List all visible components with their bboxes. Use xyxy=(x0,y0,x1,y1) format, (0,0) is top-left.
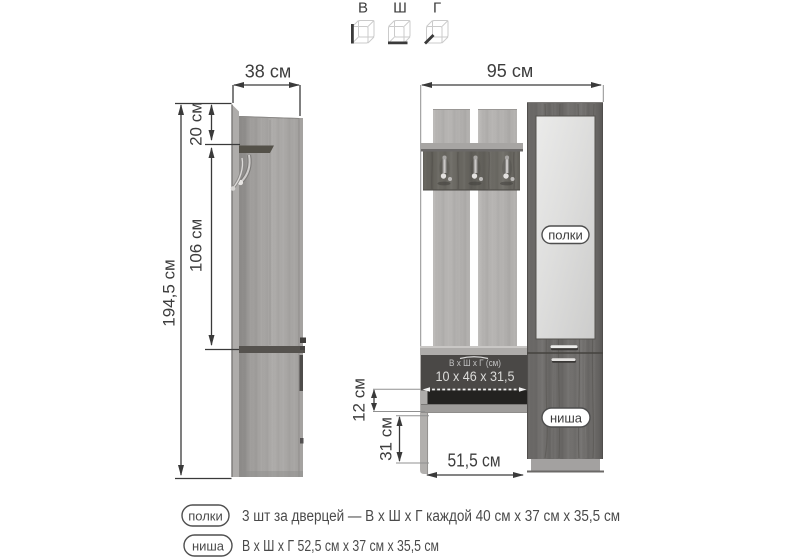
svg-text:полки: полки xyxy=(188,509,223,524)
svg-text:31 см: 31 см xyxy=(377,417,396,461)
svg-text:38 см: 38 см xyxy=(245,62,291,82)
svg-text:3 шт за дверцей — В х Ш х Г ка: 3 шт за дверцей — В х Ш х Г каждой 40 см… xyxy=(242,508,620,525)
svg-text:10 х 46 х 31,5: 10 х 46 х 31,5 xyxy=(436,369,515,384)
svg-text:51,5 см: 51,5 см xyxy=(448,450,501,471)
svg-text:20 см: 20 см xyxy=(187,102,206,146)
svg-text:ниша: ниша xyxy=(550,411,583,426)
svg-text:ниша: ниша xyxy=(192,539,225,554)
svg-text:12 см: 12 см xyxy=(350,378,369,422)
svg-text:106 см: 106 см xyxy=(187,219,206,272)
svg-text:Г: Г xyxy=(433,0,441,17)
svg-text:полки: полки xyxy=(548,228,583,243)
svg-text:В х Ш х Г (см): В х Ш х Г (см) xyxy=(449,358,501,369)
svg-text:В х Ш х Г 52,5 см х 37 см х 35: В х Ш х Г 52,5 см х 37 см х 35,5 см xyxy=(242,538,439,555)
svg-text:Ш: Ш xyxy=(393,0,407,17)
svg-text:194,5 см: 194,5 см xyxy=(160,259,179,326)
svg-text:95 см: 95 см xyxy=(487,61,533,81)
svg-text:В: В xyxy=(358,0,368,17)
